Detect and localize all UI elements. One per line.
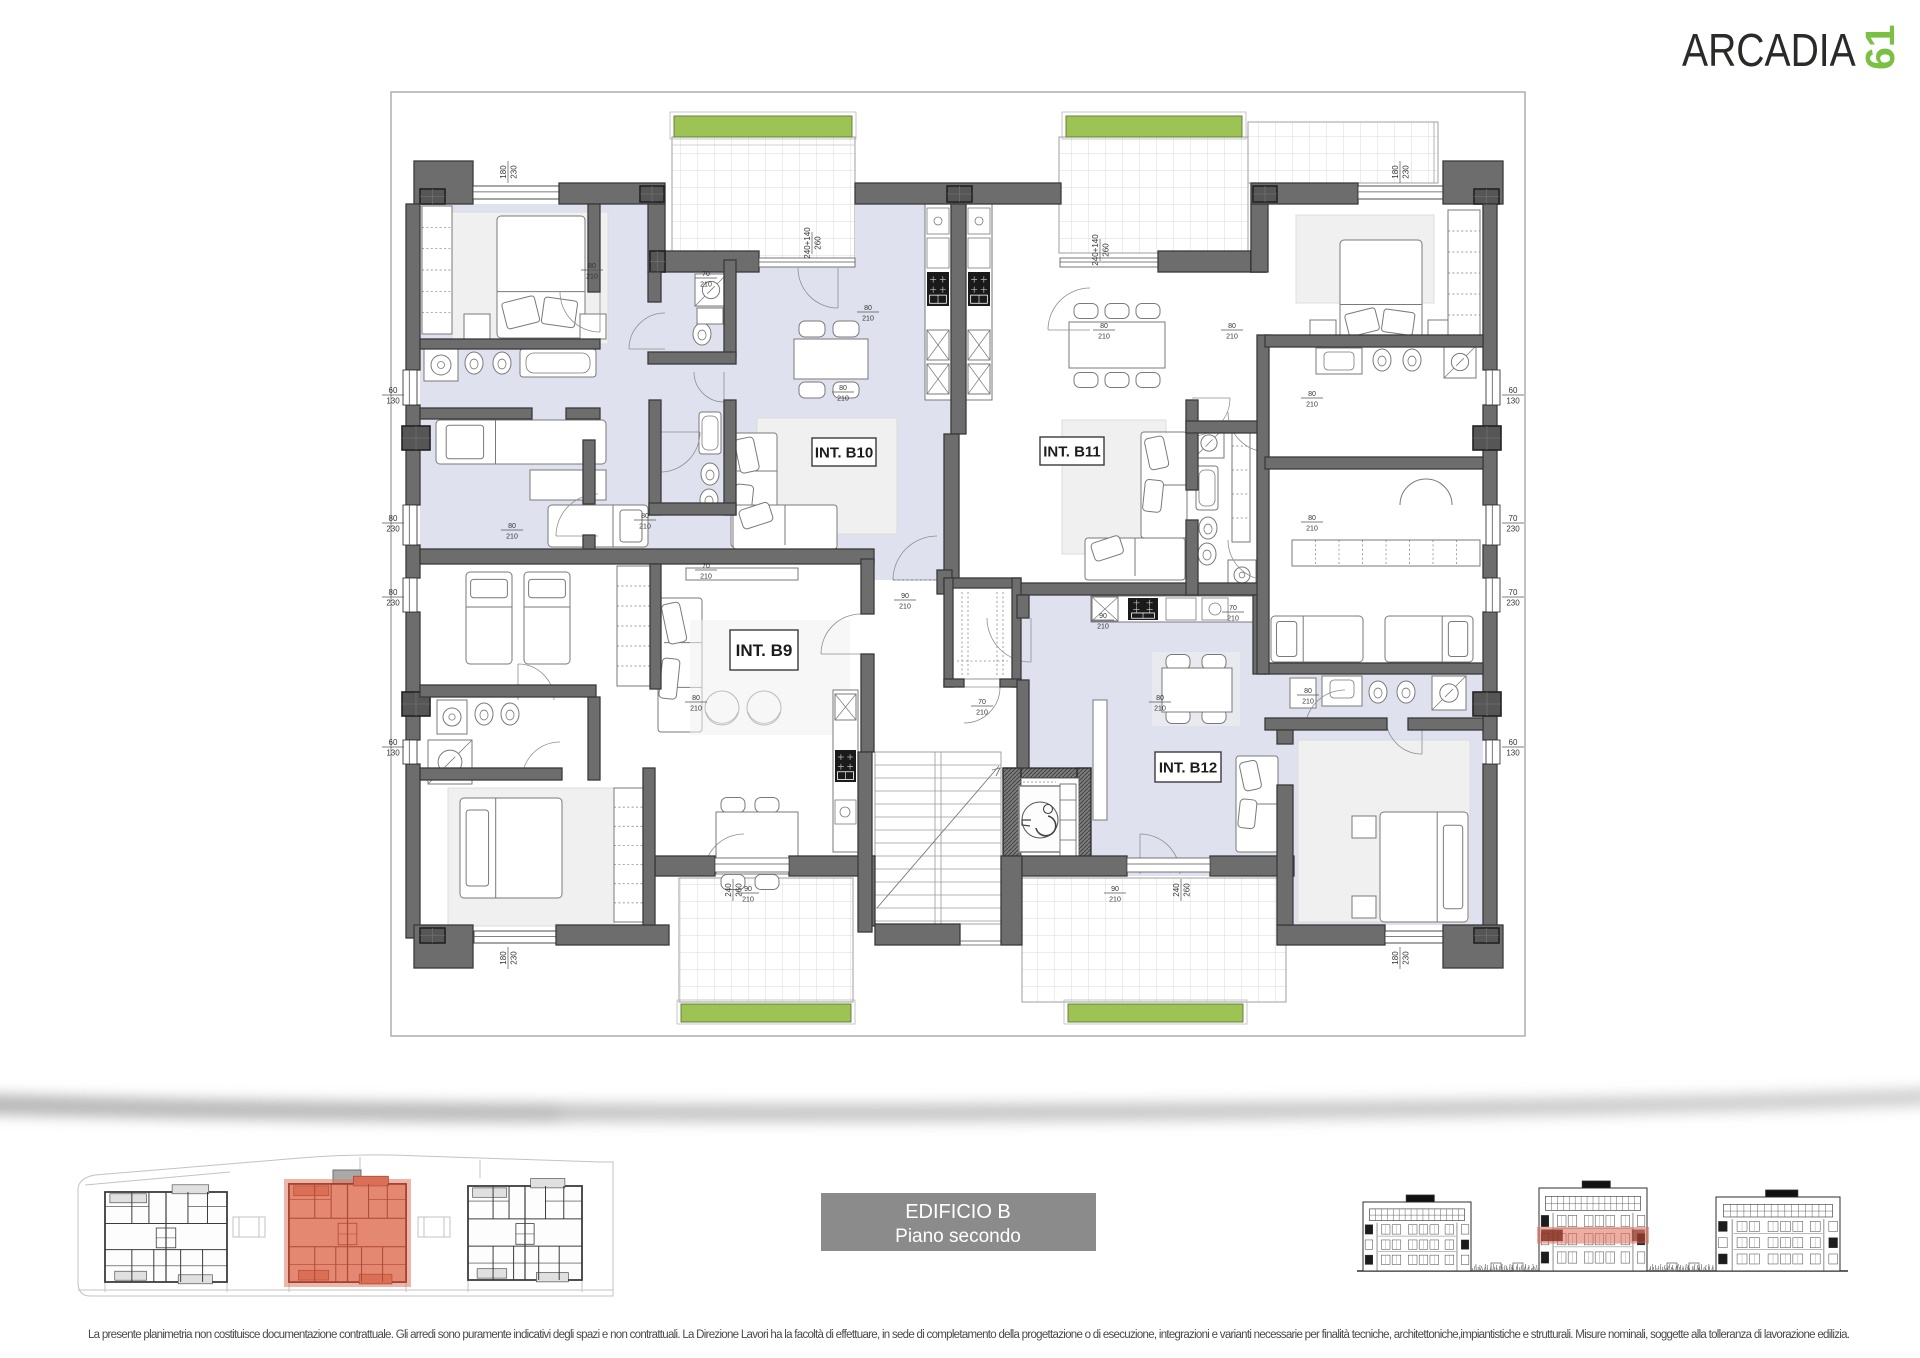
svg-text:80: 80 [1304, 688, 1312, 695]
svg-text:130: 130 [1506, 749, 1520, 758]
svg-text:70: 70 [702, 563, 710, 570]
svg-text:210: 210 [1302, 699, 1314, 706]
svg-text:70: 70 [702, 271, 710, 278]
svg-text:210: 210 [1226, 334, 1238, 341]
svg-text:ARCADIA: ARCADIA [1682, 25, 1856, 77]
svg-text:230: 230 [1402, 951, 1411, 965]
svg-text:70: 70 [1509, 514, 1518, 523]
svg-text:210: 210 [899, 604, 911, 611]
svg-text:80: 80 [641, 513, 649, 520]
svg-text:60: 60 [1509, 738, 1518, 747]
svg-text:210: 210 [1306, 402, 1318, 409]
svg-text:80: 80 [864, 305, 872, 312]
svg-text:210: 210 [1154, 706, 1166, 713]
svg-text:Piano secondo: Piano secondo [895, 1226, 1021, 1247]
svg-text:130: 130 [386, 749, 400, 758]
svg-text:130: 130 [386, 397, 400, 406]
svg-text:230: 230 [1506, 599, 1520, 608]
svg-text:INT. B12: INT. B12 [1159, 759, 1217, 776]
svg-text:80: 80 [692, 695, 700, 702]
svg-text:70: 70 [1509, 588, 1518, 597]
svg-text:80: 80 [389, 588, 398, 597]
svg-text:70: 70 [978, 699, 986, 706]
svg-text:La presente planimetria non co: La presente planimetria non costituisce … [88, 1329, 1850, 1341]
svg-text:INT. B10: INT. B10 [815, 444, 873, 461]
svg-text:240+140: 240+140 [1091, 234, 1100, 266]
svg-text:70: 70 [1229, 605, 1237, 612]
svg-text:210: 210 [700, 282, 712, 289]
svg-text:60: 60 [389, 386, 398, 395]
svg-text:90: 90 [1099, 613, 1107, 620]
svg-text:210: 210 [862, 316, 874, 323]
svg-text:210: 210 [586, 274, 598, 281]
svg-text:260: 260 [1183, 883, 1192, 897]
svg-text:80: 80 [1308, 515, 1316, 522]
svg-text:210: 210 [742, 897, 754, 904]
svg-text:80: 80 [1156, 695, 1164, 702]
svg-text:90: 90 [901, 593, 909, 600]
svg-text:180: 180 [499, 951, 508, 965]
svg-text:80: 80 [1228, 323, 1236, 330]
svg-text:240: 240 [1172, 883, 1181, 897]
svg-text:210: 210 [1306, 526, 1318, 533]
svg-text:230: 230 [510, 951, 519, 965]
svg-text:230: 230 [386, 599, 400, 608]
svg-text:60: 60 [1509, 386, 1518, 395]
svg-text:80: 80 [839, 385, 847, 392]
svg-text:180: 180 [1391, 951, 1400, 965]
svg-text:230: 230 [386, 525, 400, 534]
svg-text:INT. B9: INT. B9 [736, 641, 793, 660]
svg-text:210: 210 [1227, 616, 1239, 623]
svg-text:60: 60 [389, 738, 398, 747]
svg-text:210: 210 [837, 396, 849, 403]
svg-text:61: 61 [1857, 24, 1903, 70]
svg-text:210: 210 [690, 706, 702, 713]
svg-text:240: 240 [724, 883, 733, 897]
svg-text:210: 210 [1109, 897, 1121, 904]
svg-text:230: 230 [1402, 165, 1411, 179]
svg-text:210: 210 [1097, 624, 1109, 631]
svg-text:90: 90 [1111, 886, 1119, 893]
svg-text:210: 210 [700, 574, 712, 581]
svg-text:210: 210 [639, 524, 651, 531]
svg-text:260: 260 [814, 236, 823, 250]
svg-text:210: 210 [1098, 334, 1110, 341]
svg-text:240+140: 240+140 [803, 227, 812, 259]
svg-text:90: 90 [744, 886, 752, 893]
svg-text:80: 80 [389, 514, 398, 523]
svg-text:80: 80 [1100, 323, 1108, 330]
svg-text:180: 180 [499, 165, 508, 179]
svg-text:260: 260 [735, 883, 744, 897]
svg-text:260: 260 [1102, 243, 1111, 257]
svg-text:210: 210 [506, 534, 518, 541]
svg-text:130: 130 [1506, 397, 1520, 406]
svg-text:80: 80 [508, 523, 516, 530]
svg-text:80: 80 [588, 263, 596, 270]
svg-text:180: 180 [1391, 165, 1400, 179]
svg-text:EDIFICIO B: EDIFICIO B [905, 1201, 1011, 1223]
svg-text:80: 80 [1308, 391, 1316, 398]
svg-text:INT. B11: INT. B11 [1043, 443, 1101, 460]
svg-text:210: 210 [976, 710, 988, 717]
svg-text:230: 230 [1506, 525, 1520, 534]
svg-text:230: 230 [510, 165, 519, 179]
